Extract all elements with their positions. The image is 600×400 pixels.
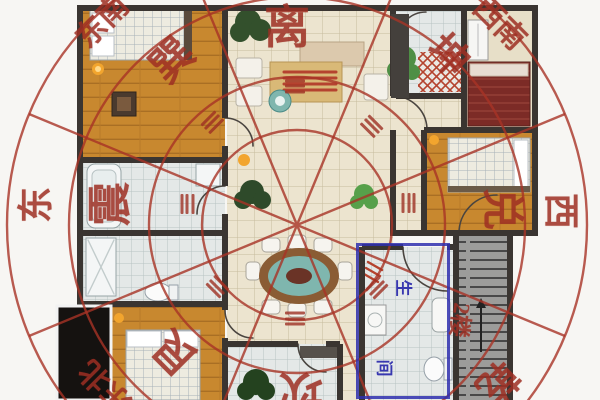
pillow [470,64,528,76]
bathroom-label-char-1: 生 [395,280,412,297]
direction-label-east: 东 [18,187,54,223]
fengshui-floorplan: 离 巽 震 艮 坎 乾 兑 坤 东 西 东南 东北 西南 2楼 生 间 [0,0,600,400]
trigram-symbol-west [400,193,419,213]
armchair [236,58,262,78]
trigram-label-north: 坎 [279,369,323,400]
tv-panel [391,14,409,98]
lamp [238,154,250,166]
trigram-symbol-east [178,194,197,214]
trigram-symbol-north [285,310,305,329]
counter [300,346,338,358]
trigram-label-west: 兑 [480,188,522,230]
bathroom-label-char-2: 间 [376,360,393,377]
bathroom-highlight-box [356,243,450,399]
lamp [114,313,124,323]
trigram-label-east: 震 [89,182,133,226]
direction-label-west: 西 [543,193,579,229]
trigram-label-south: 离 [264,5,310,51]
stairs-floor-label: 2楼 [446,301,473,338]
trigram-symbol-south [285,77,305,96]
lamp [429,135,439,145]
